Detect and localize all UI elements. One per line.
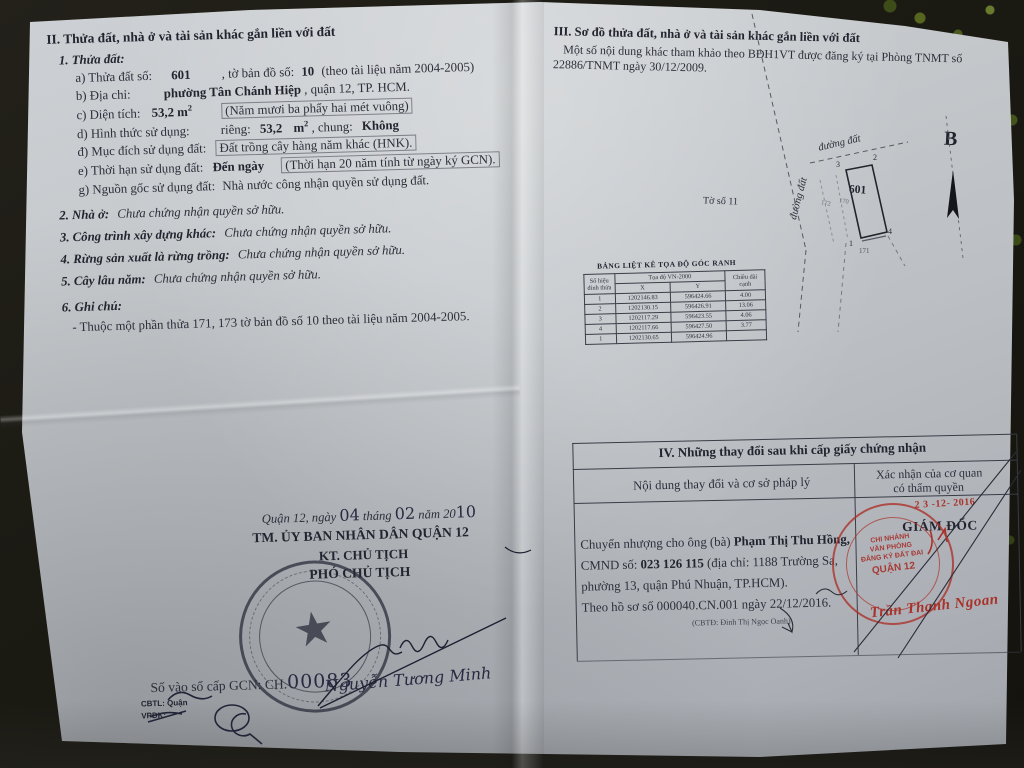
line-perennial: 5. Cây lâu năm: Chưa chứng nhận quyền sở…	[61, 267, 321, 289]
house-label: 2. Nhà ở:	[59, 207, 109, 222]
section4-title: IV. Những thay đổi sau khi cấp giấy chứn…	[658, 440, 926, 462]
date-line: Quận 12, ngày 04 tháng 02 năm 2010	[261, 502, 476, 527]
area-label: c) Diện tích:	[76, 106, 140, 122]
date-year-label: năm 20	[418, 507, 456, 522]
area-number: 53,2	[151, 106, 174, 121]
area-unit-sup: 2	[188, 104, 192, 113]
house-value: Chưa chứng nhận quyền sở hữu.	[117, 202, 284, 221]
parcel-number-label: a) Thửa đất số:	[75, 69, 152, 85]
notes-label: 6. Ghi chú:	[62, 299, 122, 316]
forest-value: Chưa chứng nhận quyền sở hữu.	[238, 243, 405, 262]
origin-value: Nhà nước công nhận quyền sử dụng đất.	[222, 173, 429, 193]
use-form-label: d) Hình thức sử dụng:	[77, 124, 190, 141]
coord-table-cell: 1202130.65	[616, 332, 672, 343]
private-label: riêng:	[221, 122, 251, 137]
line-parcel-number: a) Thửa đất số: 601 , tờ bản đồ số: 10 (…	[75, 60, 474, 86]
cmnd-label: CMND số:	[581, 558, 641, 573]
adjacent-parcel-170: 170	[839, 197, 850, 205]
private-value: 53,2	[260, 122, 283, 137]
section3-note-line2: 22886/TNMT ngày 30/12/2009.	[553, 57, 707, 75]
perennial-label: 5. Cây lâu năm:	[61, 272, 146, 288]
sec4-bottom-border	[577, 652, 1021, 662]
address-value: phường Tân Chánh Hiệp	[164, 83, 302, 101]
notes-value: - Thuộc một phần thửa 171, 173 tờ bản đồ…	[72, 309, 470, 335]
cmnd-number: 023 126 115	[640, 556, 704, 571]
duration-label: e) Thời hạn sử dụng đất:	[78, 160, 204, 177]
origin-label: g) Nguồn gốc sử dụng đất:	[78, 179, 215, 197]
coord-table-body: 11202146.83596424.664.0021202130.1559642…	[584, 290, 766, 345]
clerk-note: (CBTĐ: Đinh Thị Ngọc Oanh)	[692, 616, 791, 627]
area-words: (Năm mươi ba phẩy hai mét vuông)	[221, 98, 413, 119]
date-month-handwritten: 02	[394, 504, 415, 524]
duration-note: (Thời hạn 20 năm tính từ ngày ký GCN).	[281, 151, 500, 173]
vpdk-label: VPĐK:	[141, 711, 166, 721]
map-sheet-value: 10	[301, 64, 314, 78]
purpose-value: Đất trồng cây hàng năm khác (HNK).	[215, 135, 416, 157]
construction-value: Chưa chứng nhận quyền sở hữu.	[224, 221, 391, 240]
transfer-line3: phường 13, quận Phú Nhuận, TP.HCM).	[581, 575, 788, 594]
map-sheet-ref: Tờ số 11	[703, 195, 738, 207]
perennial-value: Chưa chứng nhận quyền sở hữu.	[154, 267, 321, 286]
address-tail: , quận 12, TP. HCM.	[304, 80, 410, 97]
section4-block: IV. Những thay đổi sau khi cấp giấy chứn…	[570, 421, 1024, 675]
shared-label: , chung:	[311, 120, 353, 135]
corner-1: 1	[849, 239, 853, 248]
unit-m: m	[293, 121, 304, 135]
committee-line: TM. ỦY BAN NHÂN DÂN QUẬN 12	[252, 524, 469, 546]
private-unit: m2	[293, 121, 308, 135]
construction-label: 3. Công trình xây dựng khác:	[60, 226, 217, 244]
map-sheet-label: , tờ bản đồ số:	[221, 65, 294, 81]
transfer-line2: CMND số: 023 126 115 (địa chỉ: 1188 Trườ…	[581, 553, 838, 573]
transfer-line1: Chuyển nhượng cho ông (bà) Phạm Thị Thu …	[580, 532, 850, 553]
transfer-text: Chuyển nhượng cho ông (bà)	[580, 535, 734, 552]
adjacent-parcel-172: 172	[821, 199, 832, 207]
duration-value: Đến ngày	[212, 159, 264, 174]
corner-3: 3	[836, 160, 840, 169]
col-point-header: Số hiệu đỉnh thửa	[584, 274, 615, 295]
purpose-label: đ) Mục đích sử dụng đất:	[77, 141, 206, 159]
corner-4: 4	[888, 227, 892, 236]
date-place: Quận 12, ngày	[262, 510, 337, 526]
sec4-col2-header-line2: có thẩm quyền	[893, 480, 964, 496]
corner-2: 2	[873, 153, 877, 162]
item1-title: 1. Thửa đất:	[59, 52, 125, 69]
shared-value: Không	[362, 118, 399, 133]
unit-sup: 2	[304, 120, 308, 129]
parcel-number-value: 601	[171, 68, 191, 83]
photo-background: II. Thửa đất, nhà ở và tài sản khác gắn …	[0, 0, 1024, 768]
cbtl-label: CBTL: Quận	[141, 698, 188, 708]
forest-label: 4. Rừng sản xuất là rừng trồng:	[60, 248, 230, 267]
date-month-label: tháng	[363, 508, 392, 523]
date-year-handwritten: 10	[455, 502, 476, 522]
parcel-number-on-map: 601	[849, 183, 867, 196]
coordinate-table: Số hiệu đỉnh thửa Tọa độ VN-2000 Chiều d…	[583, 269, 767, 345]
cmnd-address: (địa chỉ: 1188 Trường Sa,	[704, 553, 838, 570]
left-page: II. Thửa đất, nhà ở và tài sản khác gắn …	[40, 14, 560, 758]
col-length-header: Chiều dài cạnh	[725, 270, 765, 291]
line-construction: 3. Công trình xây dựng khác: Chưa chứng …	[60, 221, 392, 245]
north-label: B	[943, 128, 958, 152]
line-house: 2. Nhà ở: Chưa chứng nhận quyền sở hữu.	[59, 202, 285, 223]
coordinate-table-block: BẢNG LIỆT KÊ TỌA ĐỘ GÓC RANH Số hiệu đỉn…	[583, 257, 771, 345]
transfer-line4: Theo hồ sơ số 000040.CN.001 ngày 22/12/2…	[582, 596, 832, 616]
coord-table-cell: 1	[585, 334, 616, 345]
coord-table-cell	[727, 330, 767, 341]
address-label: b) Địa chỉ:	[76, 87, 131, 103]
right-page-header: III. Sơ đồ thửa đất, nhà ở và tài sản kh…	[546, 16, 1018, 107]
date-day-handwritten: 04	[339, 505, 360, 525]
line-forest: 4. Rừng sản xuất là rừng trồng: Chưa chứ…	[60, 243, 405, 268]
area-value: 53,2 m2	[151, 105, 192, 120]
received-date-stamp: 2 3 -12- 2016	[914, 496, 975, 510]
map-sheet-note: (theo tài liệu năm 2004-2005)	[321, 60, 474, 78]
sec4-col1-header: Nội dung thay đổi và cơ sở pháp lý	[633, 475, 810, 494]
adjacent-parcel-171: 171	[859, 247, 870, 255]
coord-table-cell: 596424.96	[671, 331, 726, 342]
section2-heading: II. Thửa đất, nhà ở và tài sản khác gắn …	[46, 24, 335, 48]
sec4-right-border	[1016, 434, 1022, 652]
